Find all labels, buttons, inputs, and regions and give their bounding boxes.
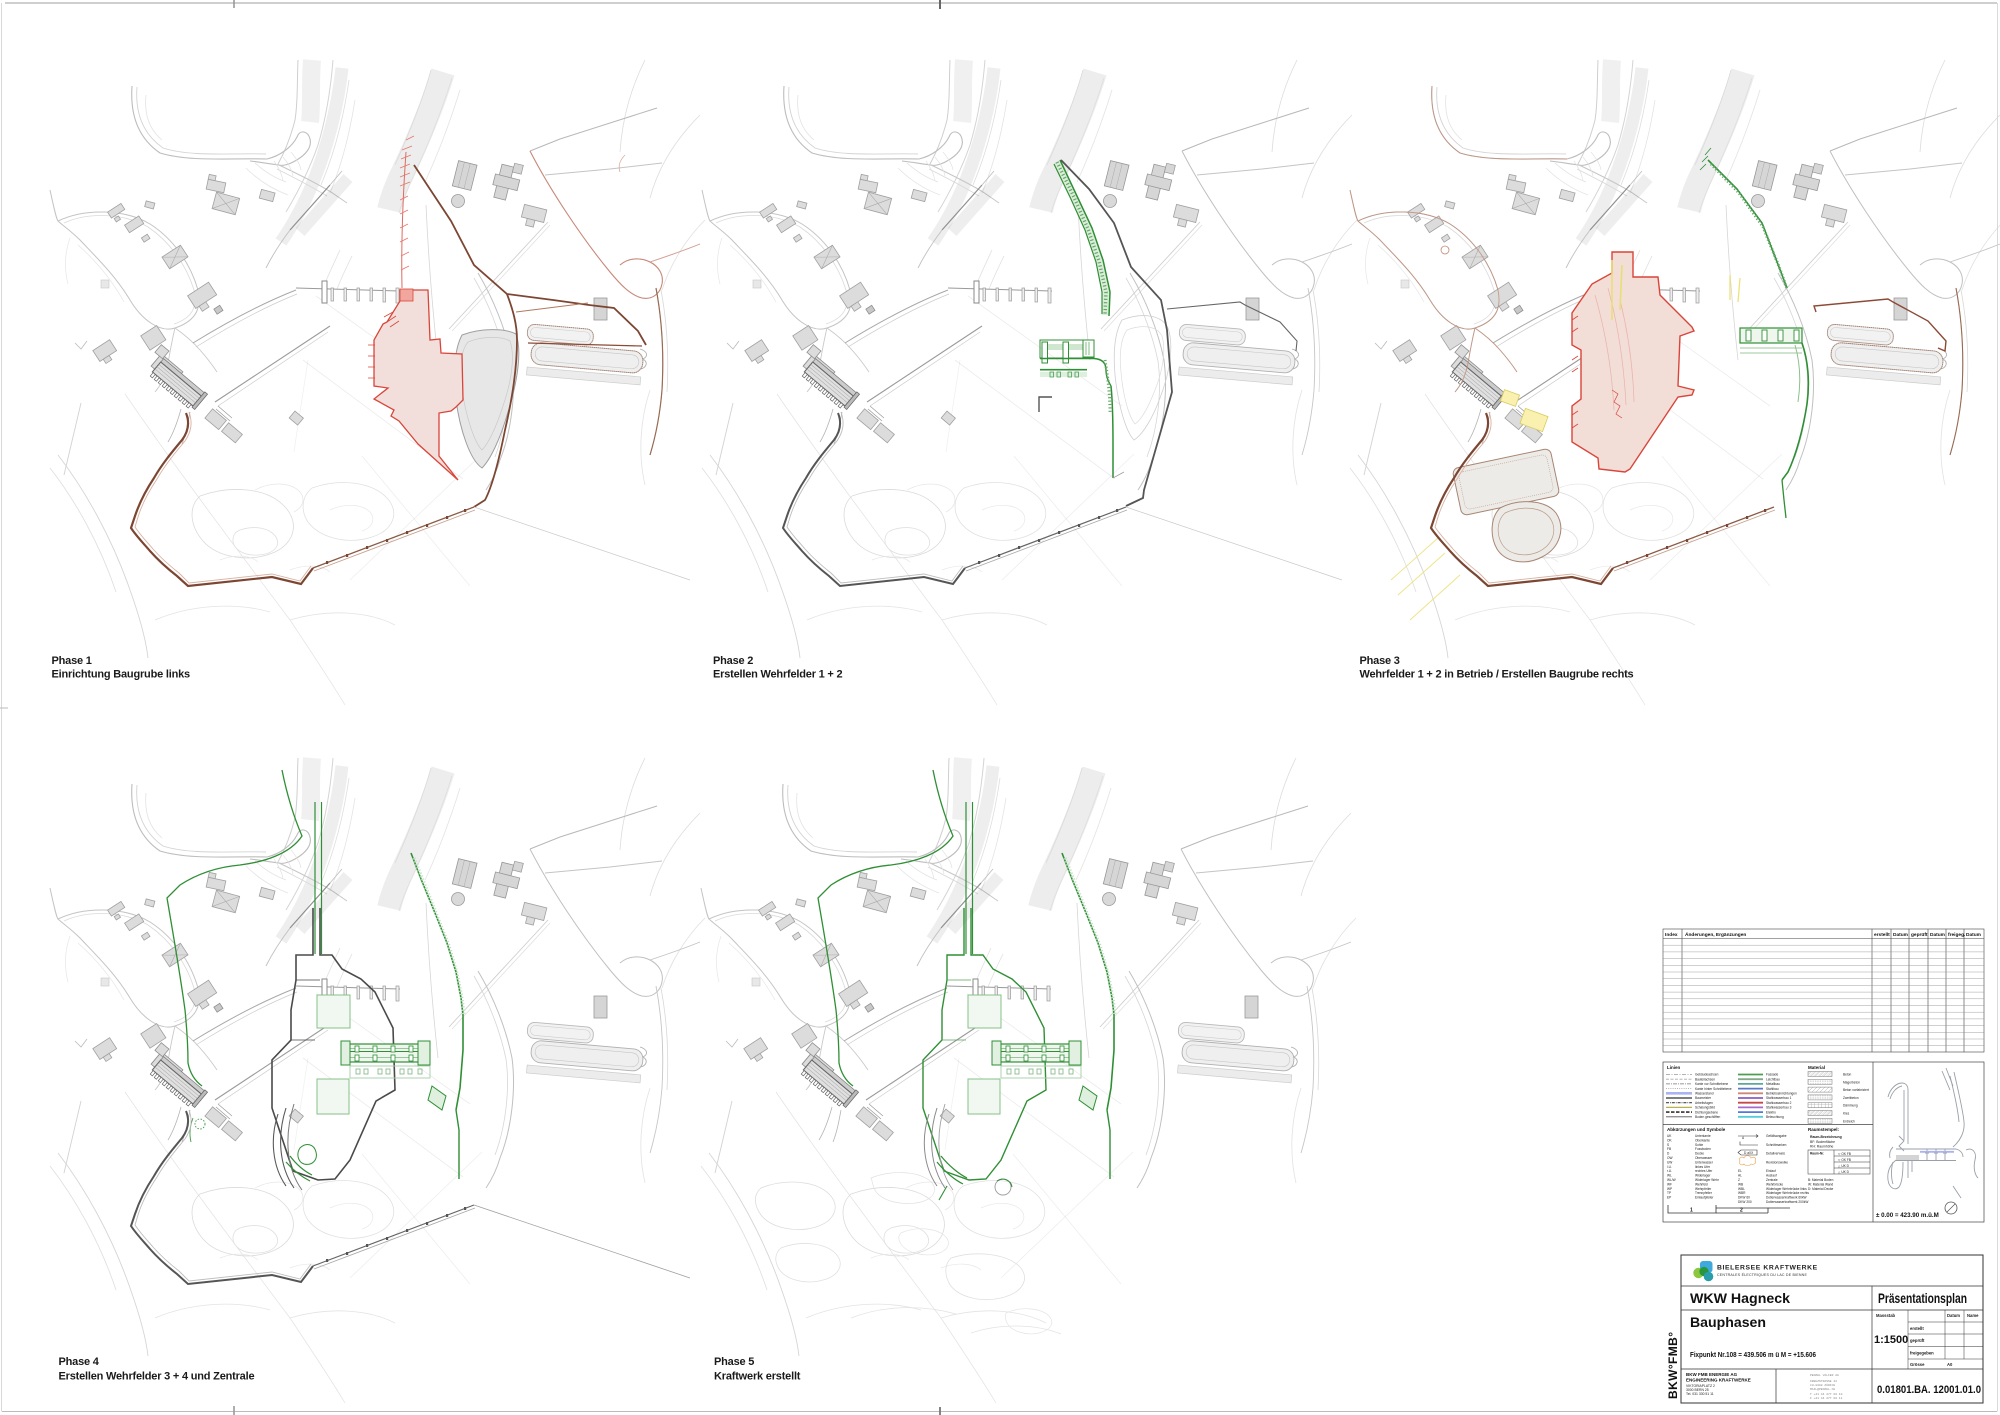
svg-text:Betriebseinrichtungen: Betriebseinrichtungen	[1766, 1092, 1797, 1096]
svg-text:BKW°FMB°: BKW°FMB°	[1666, 1332, 1680, 1399]
svg-text:Arbeitsfugen: Arbeitsfugen	[1695, 1101, 1713, 1105]
svg-text:MAIL@PENZEL.CH: MAIL@PENZEL.CH	[1810, 1387, 1835, 1391]
svg-text:Zweitbeton: Zweitbeton	[1843, 1096, 1859, 1100]
svg-text:W: Material Wand: W: Material Wand	[1808, 1182, 1833, 1186]
svg-text:Raum-Bezeichnung: Raum-Bezeichnung	[1810, 1135, 1842, 1139]
svg-text:Kraftwerk erstellt: Kraftwerk erstellt	[714, 1371, 801, 1383]
svg-text:Phase 2: Phase 2	[713, 655, 753, 667]
svg-text:▽ OK FB: ▽ OK FB	[1838, 1152, 1851, 1156]
svg-text:Wehrbrücke: Wehrbrücke	[1766, 1182, 1783, 1186]
svg-text:Decke: Decke	[1695, 1152, 1704, 1156]
svg-text:▽ OK FB: ▽ OK FB	[1838, 1158, 1851, 1162]
svg-text:Einlauf: Einlauf	[1766, 1169, 1776, 1173]
svg-text:UW: UW	[1667, 1160, 1672, 1164]
svg-text:Kies: Kies	[1843, 1112, 1850, 1116]
svg-text:Phase 4: Phase 4	[59, 1356, 100, 1368]
svg-text:Beton: Beton	[1843, 1073, 1852, 1077]
svg-text:RH: Raumhöhe: RH: Raumhöhe	[1810, 1144, 1833, 1148]
svg-text:WL: WL	[1667, 1174, 1672, 1178]
svg-text:Änderungen, Ergänzungen: Änderungen, Ergänzungen	[1685, 931, 1746, 938]
svg-text:Präsentationsplan: Präsentationsplan	[1878, 1290, 1967, 1306]
svg-text:erstellt: erstellt	[1874, 932, 1890, 938]
svg-text:Magerbeton: Magerbeton	[1843, 1080, 1860, 1084]
svg-text:△ UK D: △ UK D	[1838, 1170, 1850, 1174]
svg-text:Widerlager: Widerlager	[1695, 1174, 1711, 1178]
svg-text:WL/W: WL/W	[1667, 1178, 1676, 1182]
svg-text:Phase 1: Phase 1	[52, 655, 92, 667]
svg-text:FB: FB	[1667, 1147, 1671, 1151]
svg-text:Revisionswolke: Revisionswolke	[1766, 1160, 1788, 1164]
svg-text:Kante hinter Schnittebene: Kante hinter Schnittebene	[1695, 1087, 1732, 1091]
svg-text:r.U.: r.U.	[1667, 1169, 1672, 1173]
svg-text:2: 2	[1740, 1208, 1743, 1214]
svg-text:D: Material Decke: D: Material Decke	[1808, 1187, 1834, 1191]
svg-text:WB: WB	[1738, 1182, 1743, 1186]
svg-text:Gefällsangabe: Gefällsangabe	[1766, 1134, 1787, 1138]
svg-text:Bauphasen: Bauphasen	[1690, 1314, 1766, 1330]
svg-text:freigegeben: freigegeben	[1910, 1351, 1934, 1356]
svg-text:PENZEL VALIER AG: PENZEL VALIER AG	[1810, 1374, 1839, 1377]
svg-text:linkes Ufer: linkes Ufer	[1695, 1165, 1711, 1169]
svg-text:1: 1	[1690, 1208, 1693, 1214]
svg-text:CH-8008 ZÜRICH: CH-8008 ZÜRICH	[1810, 1383, 1835, 1387]
svg-text:EP: EP	[1667, 1196, 1671, 1200]
svg-text:Oberwasser: Oberwasser	[1695, 1156, 1713, 1160]
svg-text:erstellt: erstellt	[1910, 1326, 1924, 1331]
svg-text:Fussboden: Fussboden	[1695, 1147, 1711, 1151]
svg-text:Einrichtung Baugrube links: Einrichtung Baugrube links	[52, 669, 191, 681]
svg-text:Dichtungsebene: Dichtungsebene	[1695, 1110, 1718, 1114]
svg-text:Oberkante: Oberkante	[1695, 1138, 1710, 1142]
svg-text:Widerlager Wehrbrücke links: Widerlager Wehrbrücke links	[1766, 1187, 1807, 1191]
svg-text:WF: WF	[1667, 1182, 1672, 1186]
svg-text:Metallbau: Metallbau	[1766, 1082, 1780, 1086]
svg-text:Stahlwasserbau 3: Stahlwasserbau 3	[1766, 1106, 1792, 1110]
svg-text:± 0.00 = 423.90 m.ü.M: ± 0.00 = 423.90 m.ü.M	[1876, 1212, 1939, 1219]
svg-text:l.U.: l.U.	[1667, 1165, 1672, 1169]
svg-text:WBL: WBL	[1738, 1187, 1745, 1191]
svg-text:Erstellen Wehrfelder 3 + 4 und: Erstellen Wehrfelder 3 + 4 und Zentrale	[59, 1371, 255, 1383]
svg-text:Datum: Datum	[1966, 932, 1981, 938]
svg-text:Datum: Datum	[1947, 1313, 1960, 1318]
svg-text:Kante vor Schnittebene: Kante vor Schnittebene	[1695, 1082, 1728, 1086]
svg-text:Datum: Datum	[1930, 932, 1945, 938]
svg-text:Tel. 031 330 51 11: Tel. 031 330 51 11	[1686, 1392, 1714, 1396]
svg-text:TP: TP	[1667, 1191, 1671, 1195]
svg-text:0.01801.BA. 12001.01.0: 0.01801.BA. 12001.01.0	[1877, 1384, 1981, 1396]
svg-text:AL: AL	[1738, 1174, 1742, 1178]
svg-text:Erstellen Wehrfelder 1 + 2: Erstellen Wehrfelder 1 + 2	[713, 669, 842, 681]
svg-text:Fixpunkt Nr.108 = 439.506 m ü: Fixpunkt Nr.108 = 439.506 m ü M = +15.60…	[1690, 1352, 1816, 1359]
svg-text:ENGINEERING KRAFTWERKE: ENGINEERING KRAFTWERKE	[1686, 1378, 1751, 1383]
svg-text:WP: WP	[1667, 1187, 1672, 1191]
svg-text:OW: OW	[1667, 1156, 1673, 1160]
svg-text:BIELERSEE KRAFTWERKE: BIELERSEE KRAFTWERKE	[1717, 1265, 1818, 1272]
svg-text:EL: EL	[1738, 1169, 1742, 1173]
svg-text:Stahlwasserbau 1: Stahlwasserbau 1	[1766, 1096, 1792, 1100]
svg-text:Material: Material	[1808, 1065, 1825, 1070]
svg-text:B: Material Boden: B: Material Boden	[1808, 1178, 1834, 1182]
svg-text:Gebäudeachsen: Gebäudeachsen	[1695, 1073, 1719, 1077]
svg-text:Baumeister: Baumeister	[1695, 1096, 1712, 1100]
svg-text:Elektro: Elektro	[1766, 1110, 1776, 1114]
svg-text:WBR: WBR	[1738, 1191, 1746, 1195]
svg-text:CENTRALES ÉLECTRIQUES DU LAC D: CENTRALES ÉLECTRIQUES DU LAC DE BIENNE	[1717, 1272, 1807, 1277]
svg-text:Z: Z	[1738, 1178, 1740, 1182]
svg-text:Wasserstand: Wasserstand	[1695, 1092, 1714, 1096]
svg-text:Dämmung: Dämmung	[1843, 1104, 1858, 1108]
svg-text:geprüft: geprüft	[1911, 932, 1928, 938]
svg-text:Boden geschliffen: Boden geschliffen	[1695, 1115, 1721, 1119]
svg-text:BF: Bodenfläche: BF: Bodenfläche	[1810, 1140, 1835, 1144]
svg-text:△ UK D: △ UK D	[1838, 1164, 1850, 1168]
svg-text:Stahlbau: Stahlbau	[1766, 1087, 1779, 1091]
svg-text:WKW Hagneck: WKW Hagneck	[1690, 1290, 1790, 1306]
svg-text:T +41 44 277 60 10: T +41 44 277 60 10	[1810, 1393, 1843, 1396]
svg-text:Widerlager Wehrbrücke rechts: Widerlager Wehrbrücke rechts	[1766, 1191, 1809, 1195]
svg-text:Erdreich: Erdreich	[1843, 1119, 1855, 1123]
svg-text:Stahlwasserbau 2: Stahlwasserbau 2	[1766, 1101, 1792, 1105]
svg-text:Beleuchtung: Beleuchtung	[1766, 1115, 1784, 1119]
svg-text:Zentrale: Zentrale	[1766, 1178, 1778, 1182]
svg-text:Wehrpfeiler: Wehrpfeiler	[1695, 1187, 1712, 1191]
svg-text:Abkürzungen und Symbole: Abkürzungen und Symbole	[1667, 1127, 1726, 1132]
svg-text:KREUZSTRASSE 42: KREUZSTRASSE 42	[1810, 1380, 1837, 1383]
svg-text:Index: Index	[1665, 932, 1678, 938]
svg-text:Phase 5: Phase 5	[714, 1356, 754, 1368]
svg-text:rechtes Ufer: rechtes Ufer	[1695, 1169, 1713, 1173]
svg-text:1:1500: 1:1500	[1874, 1334, 1908, 1346]
svg-text:D aXX: D aXX	[1744, 1151, 1754, 1155]
svg-text:geprüft: geprüft	[1910, 1338, 1925, 1343]
svg-text:freigeg.: freigeg.	[1948, 932, 1965, 938]
svg-text:Einlaufpfeiler: Einlaufpfeiler	[1695, 1196, 1714, 1200]
svg-text:Linien: Linien	[1667, 1065, 1681, 1070]
svg-text:Widerlager Wehr: Widerlager Wehr	[1695, 1178, 1720, 1182]
svg-text:A0: A0	[1947, 1362, 1953, 1367]
svg-text:BKW FMB ENERGIE AG: BKW FMB ENERGIE AG	[1686, 1372, 1738, 1377]
svg-text:Raumstempel:: Raumstempel:	[1808, 1127, 1840, 1132]
svg-text:Dotierwasserkraftwerk 60kW: Dotierwasserkraftwerk 60kW	[1766, 1196, 1807, 1200]
svg-text:Beton vorfabriziert: Beton vorfabriziert	[1843, 1088, 1869, 1092]
svg-text:Datum: Datum	[1893, 932, 1908, 938]
svg-text:Bauteilachsen: Bauteilachsen	[1695, 1077, 1715, 1081]
svg-text:Massstab: Massstab	[1876, 1313, 1896, 1318]
svg-text:Sohle: Sohle	[1695, 1143, 1703, 1147]
svg-text:Auslauf: Auslauf	[1766, 1174, 1777, 1178]
svg-text:Unterwasser: Unterwasser	[1695, 1160, 1714, 1164]
svg-text:S: S	[1667, 1143, 1669, 1147]
svg-text:Wehrfeld: Wehrfeld	[1695, 1182, 1708, 1186]
svg-text:DKW 200: DKW 200	[1738, 1200, 1752, 1204]
svg-text:Dotierwasserkraftwerk 200kW: Dotierwasserkraftwerk 200kW	[1766, 1200, 1808, 1204]
svg-text:Schalungsbild: Schalungsbild	[1695, 1106, 1715, 1110]
svg-text:Detailverweis: Detailverweis	[1766, 1152, 1785, 1156]
svg-text:Unterkante: Unterkante	[1695, 1134, 1711, 1138]
svg-text:Raum-Nr.: Raum-Nr.	[1810, 1152, 1824, 1156]
svg-text:Grösse: Grösse	[1910, 1362, 1925, 1367]
svg-text:F +41 44 277 60 11: F +41 44 277 60 11	[1810, 1397, 1843, 1400]
svg-text:Fassade: Fassade	[1766, 1073, 1778, 1077]
svg-text:Trennpfeiler: Trennpfeiler	[1695, 1191, 1713, 1195]
svg-text:Wehrfelder 1 + 2 in Betrieb /: Wehrfelder 1 + 2 in Betrieb / Erstellen …	[1360, 669, 1634, 681]
svg-text:Phase 3: Phase 3	[1360, 655, 1400, 667]
svg-text:DKW 60: DKW 60	[1738, 1196, 1750, 1200]
svg-text:Schnittmarken: Schnittmarken	[1766, 1143, 1787, 1147]
svg-text:Name: Name	[1967, 1313, 1979, 1318]
svg-text:Leichtbau: Leichtbau	[1766, 1077, 1780, 1081]
